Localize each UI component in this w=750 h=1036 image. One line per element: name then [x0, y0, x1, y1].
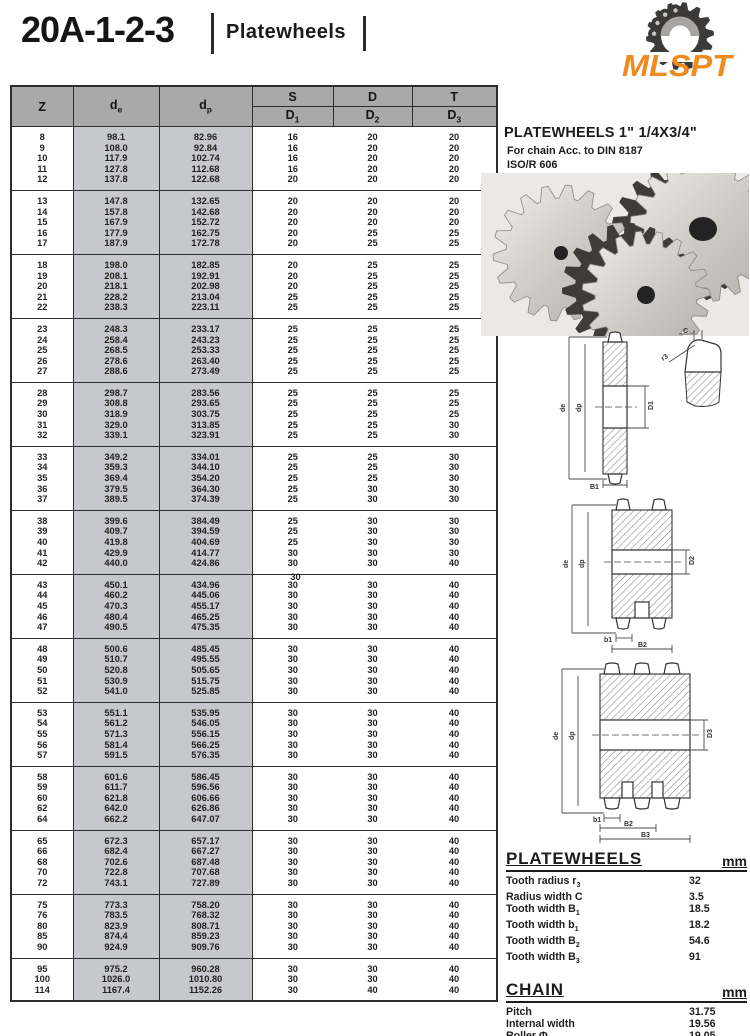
cell-d3: 40	[412, 702, 497, 718]
cell-dp: 213.04	[159, 292, 252, 303]
cell-d1: 25	[252, 494, 333, 510]
tooth-profile-detail: C r3	[660, 328, 721, 407]
cell-d2: 30	[333, 878, 412, 894]
cell-dp: 596.56	[159, 782, 252, 793]
cell-dp: 667.27	[159, 846, 252, 857]
cell-d2: 30	[333, 654, 412, 665]
cell-dp: 546.05	[159, 718, 252, 729]
cell-z: 24	[11, 335, 73, 346]
cell-d3: 30	[412, 537, 497, 548]
svg-text:de: de	[560, 404, 567, 412]
spec-value: 19.05	[689, 1031, 747, 1036]
table-row: 80823.9808.71303040	[11, 921, 497, 932]
cell-z: 41	[11, 548, 73, 559]
cell-dp: 192.91	[159, 271, 252, 282]
row-group: 13147.8132.6520202014157.8142.6820202015…	[11, 190, 497, 254]
cell-d3: 25	[412, 398, 497, 409]
cell-d3: 40	[412, 910, 497, 921]
cell-z: 16	[11, 228, 73, 239]
spec-label: Tooth radius r3	[506, 876, 689, 892]
cell-de: 298.7	[73, 382, 159, 398]
svg-text:B2: B2	[638, 642, 647, 649]
cell-de: 591.5	[73, 750, 159, 766]
cell-d2: 25	[333, 281, 412, 292]
cell-z: 43	[11, 574, 73, 590]
cell-dp: 758.20	[159, 894, 252, 910]
cell-d3: 30	[412, 484, 497, 495]
table-row: 17187.9172.78202525	[11, 238, 497, 254]
cell-de: 137.8	[73, 174, 159, 190]
cell-d1: 30	[252, 686, 333, 702]
cell-dp: 525.85	[159, 686, 252, 702]
cell-d2: 30	[333, 766, 412, 782]
table-row: 72743.1727.89303040	[11, 878, 497, 894]
cell-d1: 30	[252, 676, 333, 687]
cell-dp: 859.23	[159, 931, 252, 942]
cell-z: 14	[11, 207, 73, 218]
header-divider-bar	[363, 16, 366, 51]
cell-z: 37	[11, 494, 73, 510]
cell-d2: 25	[333, 420, 412, 431]
cell-d3: 40	[412, 894, 497, 910]
cell-d1: 30	[252, 803, 333, 814]
cell-d2: 30	[333, 537, 412, 548]
spec-value: 18.5	[689, 904, 747, 920]
cell-dp: 253.33	[159, 345, 252, 356]
cell-de: 127.8	[73, 164, 159, 175]
cell-de: 329.0	[73, 420, 159, 431]
cell-d1: 25	[252, 318, 333, 334]
table-row: 90924.9909.76303040	[11, 942, 497, 958]
table-row: 58601.6586.45303040	[11, 766, 497, 782]
cell-d1: 30	[252, 612, 333, 623]
cell-d3: 20	[412, 143, 497, 154]
cell-dp: 323.91	[159, 430, 252, 446]
row-group: 33349.2334.0125253034359.3344.1025253035…	[11, 446, 497, 510]
cell-d3: 40	[412, 803, 497, 814]
cell-d1: 30	[252, 974, 333, 985]
cell-d2: 30	[333, 830, 412, 846]
cell-z: 18	[11, 254, 73, 270]
col-header-d2: D2	[333, 107, 412, 127]
spec-row: Tooth width B118.5	[506, 904, 747, 920]
cell-de: 248.3	[73, 318, 159, 334]
cell-d1: 25	[252, 382, 333, 398]
spec-unit: mm	[722, 853, 747, 869]
cell-z: 10	[11, 153, 73, 164]
cell-d1: 30	[252, 814, 333, 830]
cell-d2: 20	[333, 174, 412, 190]
table-row: 40419.8404.69253030	[11, 537, 497, 548]
cell-d1: 25	[252, 292, 333, 303]
svg-text:dp: dp	[576, 403, 583, 412]
table-row: 76783.5768.32303040	[11, 910, 497, 921]
cell-z: 30	[11, 409, 73, 420]
drawing-duplex-section: D2 de dp b1 B2	[542, 496, 747, 656]
cell-de: 874.4	[73, 931, 159, 942]
cell-d1: 25	[252, 510, 333, 526]
cell-z: 44	[11, 590, 73, 601]
table-row: 47490.5475.35303040	[11, 622, 497, 638]
cell-d3: 40	[412, 974, 497, 985]
cell-d3: 40	[412, 750, 497, 766]
table-row: 36379.5364.30253030	[11, 484, 497, 495]
table-row: 60621.8606.66303040	[11, 793, 497, 804]
cell-d1: 25	[252, 398, 333, 409]
cell-d3: 20	[412, 127, 497, 143]
cell-z: 62	[11, 803, 73, 814]
cell-z: 35	[11, 473, 73, 484]
cell-dp: 82.96	[159, 127, 252, 143]
cell-de: 108.0	[73, 143, 159, 154]
cell-d1: 20	[252, 281, 333, 292]
cell-z: 56	[11, 740, 73, 751]
cell-de: 520.8	[73, 665, 159, 676]
table-row: 75773.3758.20303040	[11, 894, 497, 910]
cell-d2: 30	[333, 665, 412, 676]
table-row: 57591.5576.35303040	[11, 750, 497, 766]
cell-d2: 20	[333, 207, 412, 218]
cell-d2: 30	[333, 612, 412, 623]
cell-dp: 455.17	[159, 601, 252, 612]
cell-de: 621.8	[73, 793, 159, 804]
cell-d2: 25	[333, 382, 412, 398]
table-row: 26278.6263.40252525	[11, 356, 497, 367]
cell-z: 23	[11, 318, 73, 334]
table-header: Z de dp S D T D1 D2 D3	[11, 86, 497, 127]
cell-de: 924.9	[73, 942, 159, 958]
cell-z: 58	[11, 766, 73, 782]
cell-z: 46	[11, 612, 73, 623]
cell-d2: 30	[333, 729, 412, 740]
cell-z: 64	[11, 814, 73, 830]
cell-z: 42	[11, 558, 73, 574]
table-row: 45470.3455.17303040	[11, 601, 497, 612]
cell-dp: 475.35	[159, 622, 252, 638]
cell-d1: 30	[252, 740, 333, 751]
table-row: 14157.8142.68202020	[11, 207, 497, 218]
cell-dp: 768.32	[159, 910, 252, 921]
spec-row: Tooth width B254.6	[506, 936, 747, 952]
catalog-page: 20A-1-2-3 Platewheels MLSPT Z de	[0, 0, 750, 1036]
cell-z: 34	[11, 462, 73, 473]
cell-dp: 394.59	[159, 526, 252, 537]
cell-de: 318.9	[73, 409, 159, 420]
cell-de: 490.5	[73, 622, 159, 638]
cell-dp: 424.86	[159, 558, 252, 574]
cell-d1: 30	[252, 958, 333, 974]
svg-text:B1: B1	[590, 484, 599, 490]
cell-dp: 647.07	[159, 814, 252, 830]
svg-text:dp: dp	[579, 559, 586, 568]
cell-de: 98.1	[73, 127, 159, 143]
table-row: 53551.1535.95303040	[11, 702, 497, 718]
cell-d3: 40	[412, 676, 497, 687]
table-row: 59611.7596.56303040	[11, 782, 497, 793]
spec-row: Roller Φ19.05	[506, 1031, 747, 1036]
cell-de: 177.9	[73, 228, 159, 239]
cell-de: 702.6	[73, 857, 159, 868]
cell-d1: 30	[252, 601, 333, 612]
cell-d2: 30	[333, 814, 412, 830]
cell-z: 22	[11, 302, 73, 318]
cell-z: 26	[11, 356, 73, 367]
cell-d2: 30	[333, 638, 412, 654]
cell-d1: 30	[252, 793, 333, 804]
cell-de: 743.1	[73, 878, 159, 894]
cell-d3: 40	[412, 590, 497, 601]
cell-d1: 25	[252, 366, 333, 382]
cell-d1: 30	[252, 729, 333, 740]
cell-d2: 30	[333, 548, 412, 559]
cell-de: 369.4	[73, 473, 159, 484]
table-row: 29308.8293.65252525	[11, 398, 497, 409]
table-row: 31329.0313.85252530	[11, 420, 497, 431]
cell-d2: 30	[333, 958, 412, 974]
table-row: 19208.1192.91202525	[11, 271, 497, 282]
row-group: 48500.6485.4530304049510.7495.5530304050…	[11, 638, 497, 702]
table-row: 9108.092.84162020	[11, 143, 497, 154]
table-row: 62642.0626.86303040	[11, 803, 497, 814]
table-row: 85874.4859.23303040	[11, 931, 497, 942]
cell-dp: 687.48	[159, 857, 252, 868]
cell-de: 379.5	[73, 484, 159, 495]
cell-z: 31	[11, 420, 73, 431]
cell-d3: 25	[412, 345, 497, 356]
cell-dp: 515.75	[159, 676, 252, 687]
svg-text:D2: D2	[689, 556, 696, 565]
cell-dp: 909.76	[159, 942, 252, 958]
col-header-d: D	[333, 86, 412, 107]
cell-d1: 30	[252, 894, 333, 910]
cell-d3: 40	[412, 830, 497, 846]
cell-dp: 223.11	[159, 302, 252, 318]
cell-d2: 30	[333, 686, 412, 702]
row-group: 28298.7283.5625252529308.8293.6525252530…	[11, 382, 497, 446]
product-title: PLATEWHEELS 1" 1/4X3/4"	[504, 125, 697, 141]
cell-d2: 25	[333, 302, 412, 318]
cell-de: 450.1	[73, 574, 159, 590]
cell-z: 52	[11, 686, 73, 702]
cell-d2: 20	[333, 143, 412, 154]
spec-label: Tooth width b1	[506, 920, 689, 936]
cell-de: 571.3	[73, 729, 159, 740]
platewheel-table: Z de dp S D T D1 D2 D3 898.182.961620209…	[10, 85, 498, 1002]
cell-d1: 30	[252, 867, 333, 878]
cell-dp: 404.69	[159, 537, 252, 548]
cell-d1: 25	[252, 430, 333, 446]
cell-d1: 30	[252, 878, 333, 894]
cell-d1: 25	[252, 420, 333, 431]
cell-d1: 16	[252, 164, 333, 175]
cell-d3: 30	[412, 462, 497, 473]
cell-de: 682.4	[73, 846, 159, 857]
col-header-d3: D3	[412, 107, 497, 127]
cell-d1: 20	[252, 217, 333, 228]
cell-d3: 40	[412, 574, 497, 590]
cell-d2: 30	[333, 676, 412, 687]
cell-d2: 20	[333, 164, 412, 175]
cell-de: 551.1	[73, 702, 159, 718]
page-title: Platewheels	[226, 21, 346, 44]
cell-d3: 30	[412, 430, 497, 446]
svg-text:D1: D1	[648, 401, 655, 410]
cell-dp: 334.01	[159, 446, 252, 462]
cell-z: 47	[11, 622, 73, 638]
cell-dp: 313.85	[159, 420, 252, 431]
cell-de: 823.9	[73, 921, 159, 932]
cell-d3: 30	[412, 548, 497, 559]
cell-de: 228.2	[73, 292, 159, 303]
cell-de: 339.1	[73, 430, 159, 446]
table-row: 1001026.01010.80303040	[11, 974, 497, 985]
cell-de: 399.6	[73, 510, 159, 526]
cell-d1: 30	[252, 766, 333, 782]
cell-dp: 495.55	[159, 654, 252, 665]
cell-d2: 25	[333, 292, 412, 303]
cell-d2: 25	[333, 366, 412, 382]
cell-d1: 25	[252, 302, 333, 318]
cell-de: 470.3	[73, 601, 159, 612]
cell-d1: 30	[252, 548, 333, 559]
cell-de: 147.8	[73, 190, 159, 206]
stray-value: 30	[255, 572, 336, 582]
table-row: 11127.8112.68162020	[11, 164, 497, 175]
cell-z: 114	[11, 985, 73, 1002]
table-row: 1141167.41152.26304040	[11, 985, 497, 1002]
cell-d2: 30	[333, 793, 412, 804]
cell-d3: 40	[412, 846, 497, 857]
cell-de: 198.0	[73, 254, 159, 270]
cell-z: 57	[11, 750, 73, 766]
cell-d3: 40	[412, 558, 497, 574]
table-row: 38399.6384.49253030	[11, 510, 497, 526]
cell-d1: 25	[252, 462, 333, 473]
cell-d1: 16	[252, 153, 333, 164]
cell-dp: 364.30	[159, 484, 252, 495]
logo-text: MLSPT	[622, 48, 735, 80]
platewheels-spec-header: PLATEWHEELS mm	[506, 849, 747, 872]
cell-de: 429.9	[73, 548, 159, 559]
cell-dp: 1010.80	[159, 974, 252, 985]
table-row: 52541.0525.85303040	[11, 686, 497, 702]
cell-d1: 20	[252, 271, 333, 282]
cell-d1: 20	[252, 238, 333, 254]
cell-de: 460.2	[73, 590, 159, 601]
cell-d1: 16	[252, 127, 333, 143]
cell-de: 409.7	[73, 526, 159, 537]
spec-label: Tooth width B1	[506, 904, 689, 920]
cell-d2: 30	[333, 574, 412, 590]
cell-de: 510.7	[73, 654, 159, 665]
cell-dp: 112.68	[159, 164, 252, 175]
cell-dp: 273.49	[159, 366, 252, 382]
cell-z: 72	[11, 878, 73, 894]
cell-d3: 25	[412, 382, 497, 398]
cell-d1: 20	[252, 207, 333, 218]
cell-d3: 20	[412, 153, 497, 164]
table-row: 66682.4667.27303040	[11, 846, 497, 857]
cell-dp: 92.84	[159, 143, 252, 154]
cell-de: 218.1	[73, 281, 159, 292]
cell-d3: 40	[412, 857, 497, 868]
table-row: 65672.3657.17303040	[11, 830, 497, 846]
chain-spec-block: CHAIN mm Pitch31.75Internal width19.56Ro…	[506, 980, 747, 1036]
table-row: 35369.4354.20252530	[11, 473, 497, 484]
cell-d1: 25	[252, 484, 333, 495]
cell-de: 530.9	[73, 676, 159, 687]
cell-z: 12	[11, 174, 73, 190]
cell-d1: 20	[252, 190, 333, 206]
row-group: 38399.6384.4925303039409.7394.5925303040…	[11, 510, 497, 574]
col-header-t: T	[412, 86, 497, 107]
cell-d2: 25	[333, 228, 412, 239]
cell-de: 208.1	[73, 271, 159, 282]
cell-dp: 576.35	[159, 750, 252, 766]
cell-z: 70	[11, 867, 73, 878]
cell-d1: 20	[252, 254, 333, 270]
cell-d2: 25	[333, 473, 412, 484]
spec-lists: PLATEWHEELS mm Tooth radius r332Radius w…	[506, 849, 747, 1036]
cell-d2: 20	[333, 127, 412, 143]
chain-spec-header: CHAIN mm	[506, 980, 747, 1003]
cell-z: 66	[11, 846, 73, 857]
cell-de: 783.5	[73, 910, 159, 921]
cell-dp: 556.15	[159, 729, 252, 740]
spec-label: Internal width	[506, 1019, 689, 1031]
table-row: 28298.7283.56252525	[11, 382, 497, 398]
cell-de: 187.9	[73, 238, 159, 254]
cell-de: 581.4	[73, 740, 159, 751]
row-group: 23248.3233.1725252524258.4243.2325252525…	[11, 318, 497, 382]
cell-z: 95	[11, 958, 73, 974]
cell-d3: 30	[412, 494, 497, 510]
cell-d2: 30	[333, 740, 412, 751]
cell-d3: 40	[412, 665, 497, 676]
cell-z: 40	[11, 537, 73, 548]
svg-text:de: de	[553, 732, 560, 740]
cell-d1: 30	[252, 942, 333, 958]
spec-title: PLATEWHEELS	[506, 849, 642, 869]
cell-d2: 30	[333, 558, 412, 574]
sprocket-photos	[481, 173, 749, 336]
cell-dp: 707.68	[159, 867, 252, 878]
cell-z: 21	[11, 292, 73, 303]
cell-dp: 445.06	[159, 590, 252, 601]
cell-de: 258.4	[73, 335, 159, 346]
svg-text:r3: r3	[660, 353, 669, 363]
cell-z: 75	[11, 894, 73, 910]
cell-dp: 344.10	[159, 462, 252, 473]
row-group: 898.182.961620209108.092.8416202010117.9…	[11, 127, 497, 191]
cell-z: 49	[11, 654, 73, 665]
row-group: 65672.3657.1730304066682.4667.2730304068…	[11, 830, 497, 894]
spec-row: Tooth width B391	[506, 952, 747, 968]
table-row: 68702.6687.48303040	[11, 857, 497, 868]
cell-dp: 657.17	[159, 830, 252, 846]
cell-d1: 30	[252, 857, 333, 868]
cell-d2: 30	[333, 494, 412, 510]
cell-de: 642.0	[73, 803, 159, 814]
cell-d1: 30	[252, 782, 333, 793]
cell-z: 65	[11, 830, 73, 846]
cell-dp: 1152.26	[159, 985, 252, 1002]
cell-de: 349.2	[73, 446, 159, 462]
cell-de: 268.5	[73, 345, 159, 356]
cell-d2: 30	[333, 702, 412, 718]
table-row: 41429.9414.77303030	[11, 548, 497, 559]
table-row: 37389.5374.39253030	[11, 494, 497, 510]
